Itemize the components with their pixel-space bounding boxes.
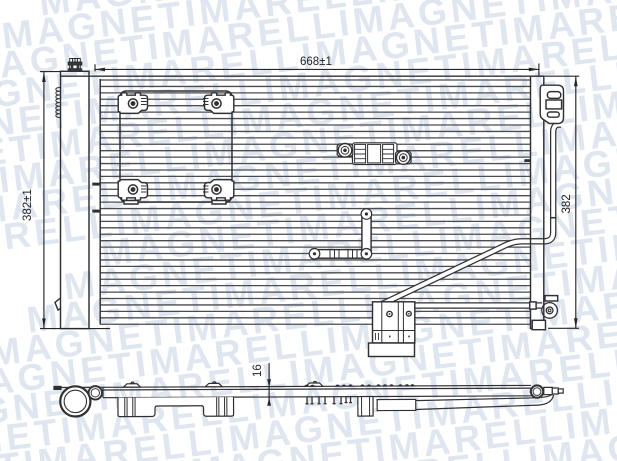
svg-text:382±1: 382±1 [22, 189, 34, 221]
svg-text:382: 382 [561, 194, 573, 213]
svg-text:668±1: 668±1 [300, 56, 332, 68]
svg-text:16: 16 [252, 364, 264, 377]
